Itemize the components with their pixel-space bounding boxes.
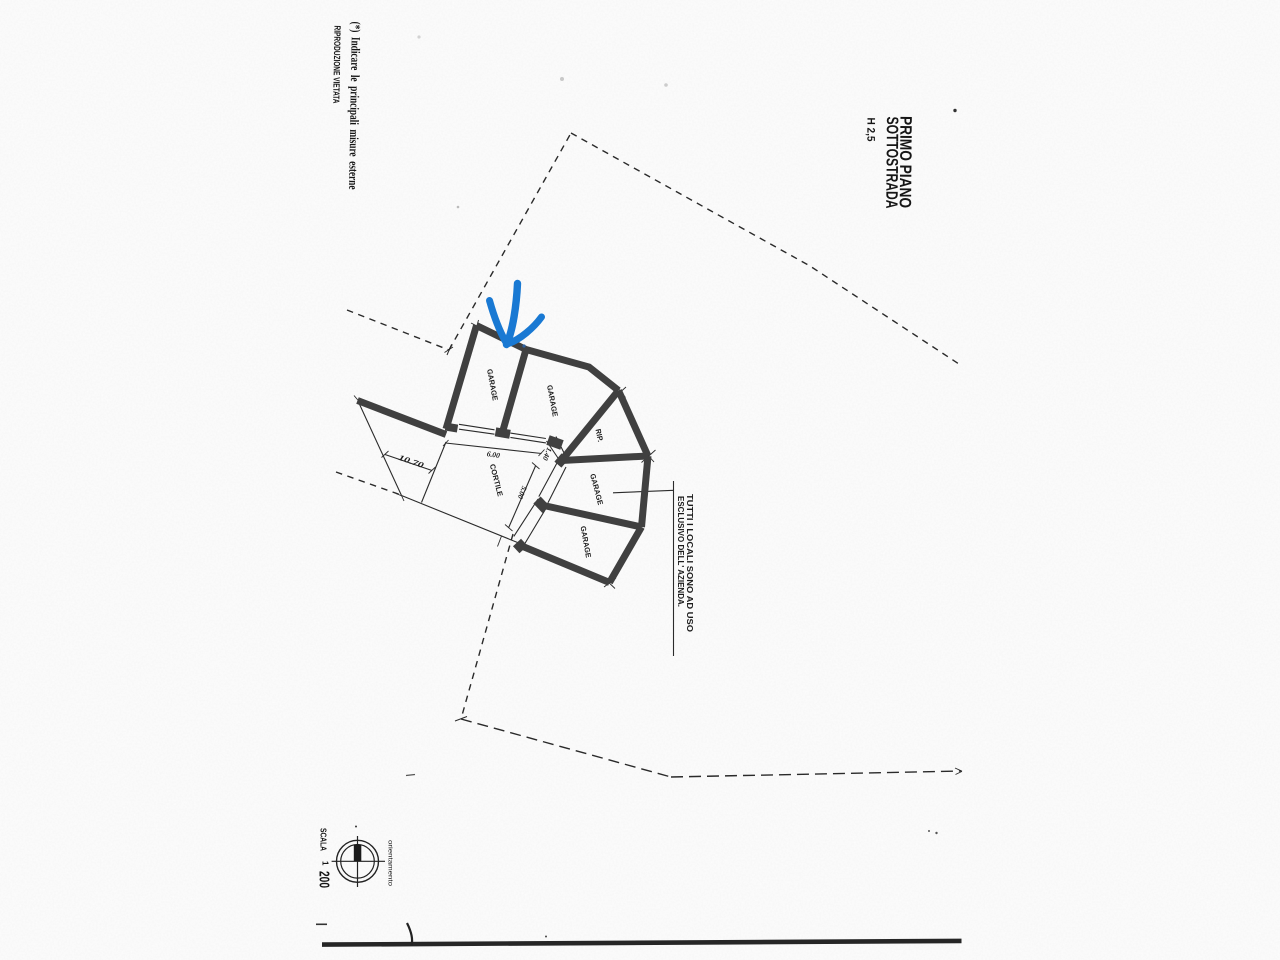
- svg-text:200: 200: [316, 871, 332, 888]
- svg-text:ESCLUSIVO DELL' AZIENDA.: ESCLUSIVO DELL' AZIENDA.: [676, 496, 686, 607]
- svg-text:orientamento: orientamento: [387, 840, 394, 886]
- svg-text:SOTTOSTRADA: SOTTOSTRADA: [882, 116, 901, 208]
- svg-text:RIPRODUZIONE VIETATA: RIPRODUZIONE VIETATA: [331, 25, 342, 104]
- svg-text:SCALA: SCALA: [319, 828, 328, 851]
- svg-text:H 2,5: H 2,5: [864, 117, 876, 141]
- svg-text:(*) Indicare le principali mis: (*) Indicare le principali misure estern…: [346, 21, 363, 190]
- svg-text:1: 1: [321, 861, 330, 866]
